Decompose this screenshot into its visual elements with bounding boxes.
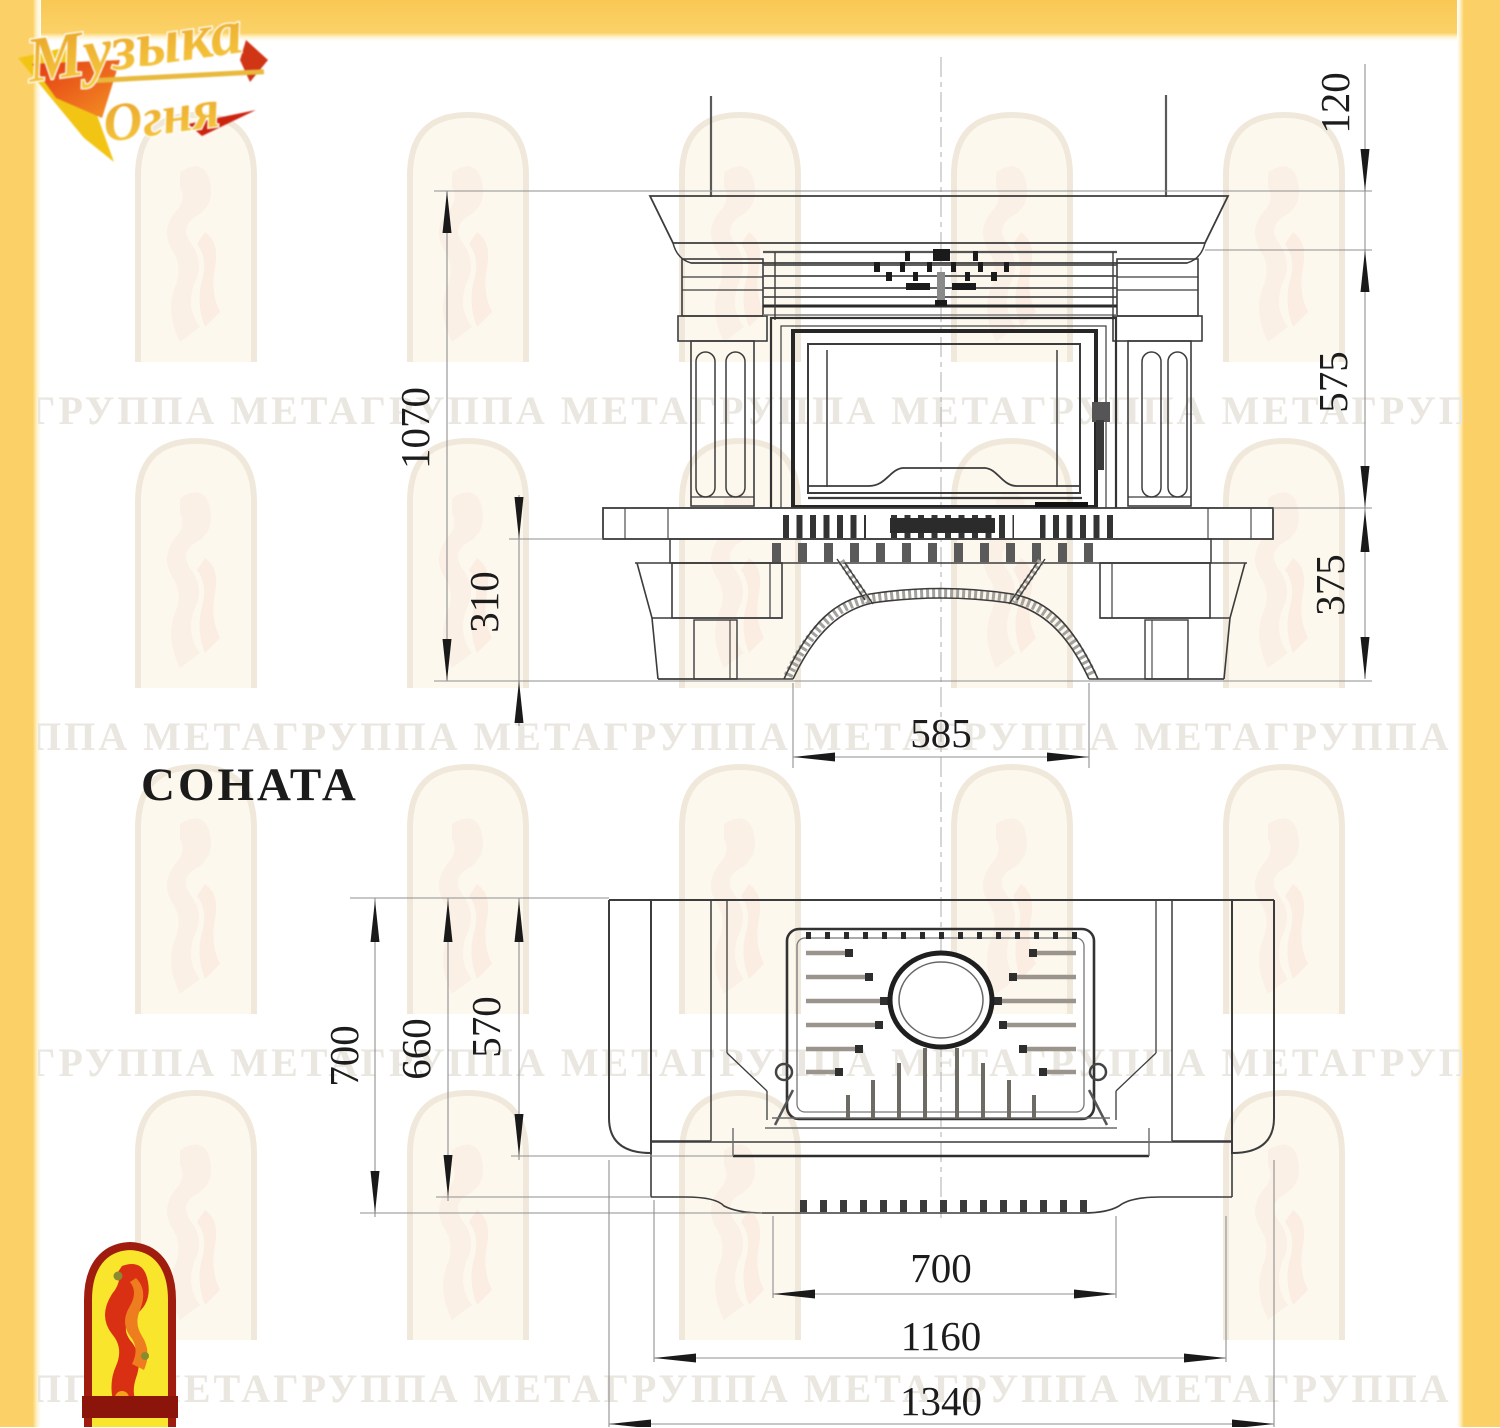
- svg-text:585: 585: [910, 710, 972, 756]
- svg-text:570: 570: [463, 996, 509, 1058]
- svg-text:1160: 1160: [901, 1313, 981, 1359]
- svg-text:575: 575: [1310, 351, 1356, 413]
- svg-text:1340: 1340: [900, 1378, 982, 1424]
- svg-text:310: 310: [461, 571, 507, 633]
- svg-text:1070: 1070: [392, 387, 438, 469]
- svg-text:660: 660: [393, 1018, 439, 1080]
- svg-text:700: 700: [910, 1245, 972, 1291]
- svg-text:120: 120: [1312, 72, 1358, 134]
- svg-text:Огня: Огня: [99, 78, 223, 154]
- svg-text:700: 700: [321, 1025, 367, 1087]
- svg-text:375: 375: [1307, 554, 1353, 616]
